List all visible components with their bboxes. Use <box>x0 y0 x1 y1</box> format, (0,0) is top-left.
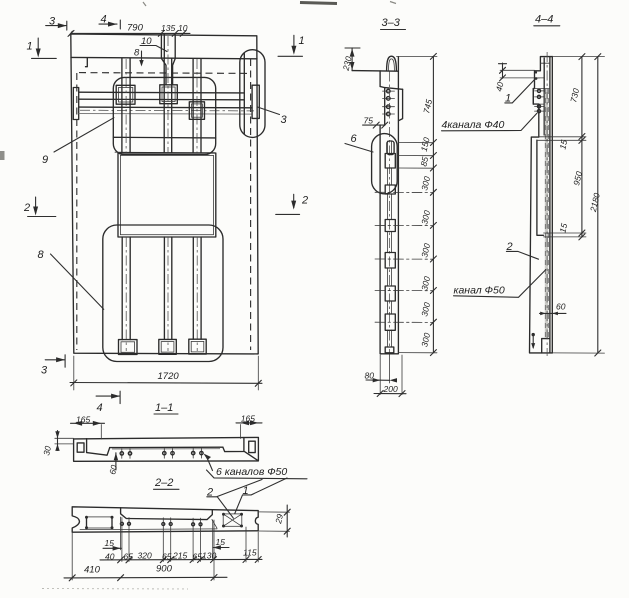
svg-text:10: 10 <box>178 23 188 33</box>
svg-text:3: 3 <box>41 365 48 377</box>
svg-text:115: 115 <box>243 548 257 558</box>
svg-text:165: 165 <box>241 414 255 424</box>
svg-text:1–1: 1–1 <box>155 402 173 414</box>
svg-text:65: 65 <box>193 551 203 561</box>
svg-text:8: 8 <box>38 249 45 261</box>
svg-text:320: 320 <box>138 551 152 561</box>
svg-text:40: 40 <box>105 552 115 562</box>
svg-text:2: 2 <box>301 195 308 207</box>
svg-text:65: 65 <box>124 552 134 562</box>
svg-text:65: 65 <box>162 551 172 561</box>
svg-text:3–3: 3–3 <box>382 17 401 29</box>
svg-text:6: 6 <box>351 133 358 145</box>
svg-text:4: 4 <box>97 402 103 414</box>
svg-text:1: 1 <box>299 35 305 47</box>
svg-text:3: 3 <box>281 114 288 126</box>
svg-text:канал Ф50: канал Ф50 <box>454 285 505 297</box>
svg-text:215: 215 <box>172 551 187 561</box>
svg-text:2–2: 2–2 <box>154 477 173 489</box>
svg-text:410: 410 <box>84 565 101 576</box>
svg-text:75: 75 <box>364 116 374 126</box>
svg-text:1720: 1720 <box>158 371 180 382</box>
svg-text:8: 8 <box>134 48 140 59</box>
svg-text:165: 165 <box>76 415 90 425</box>
svg-text:9: 9 <box>42 154 48 166</box>
svg-text:80: 80 <box>365 371 375 381</box>
svg-text:135: 135 <box>161 23 175 33</box>
svg-text:60: 60 <box>556 302 566 312</box>
svg-text:2: 2 <box>23 202 30 214</box>
svg-text:1: 1 <box>27 41 33 53</box>
svg-text:6 каналов Ф50: 6 каналов Ф50 <box>216 466 287 478</box>
svg-text:900: 900 <box>156 564 173 575</box>
svg-text:4канала Ф40: 4канала Ф40 <box>442 119 505 131</box>
svg-text:200: 200 <box>383 384 398 394</box>
svg-text:790: 790 <box>127 23 144 34</box>
svg-text:4–4: 4–4 <box>535 14 553 26</box>
